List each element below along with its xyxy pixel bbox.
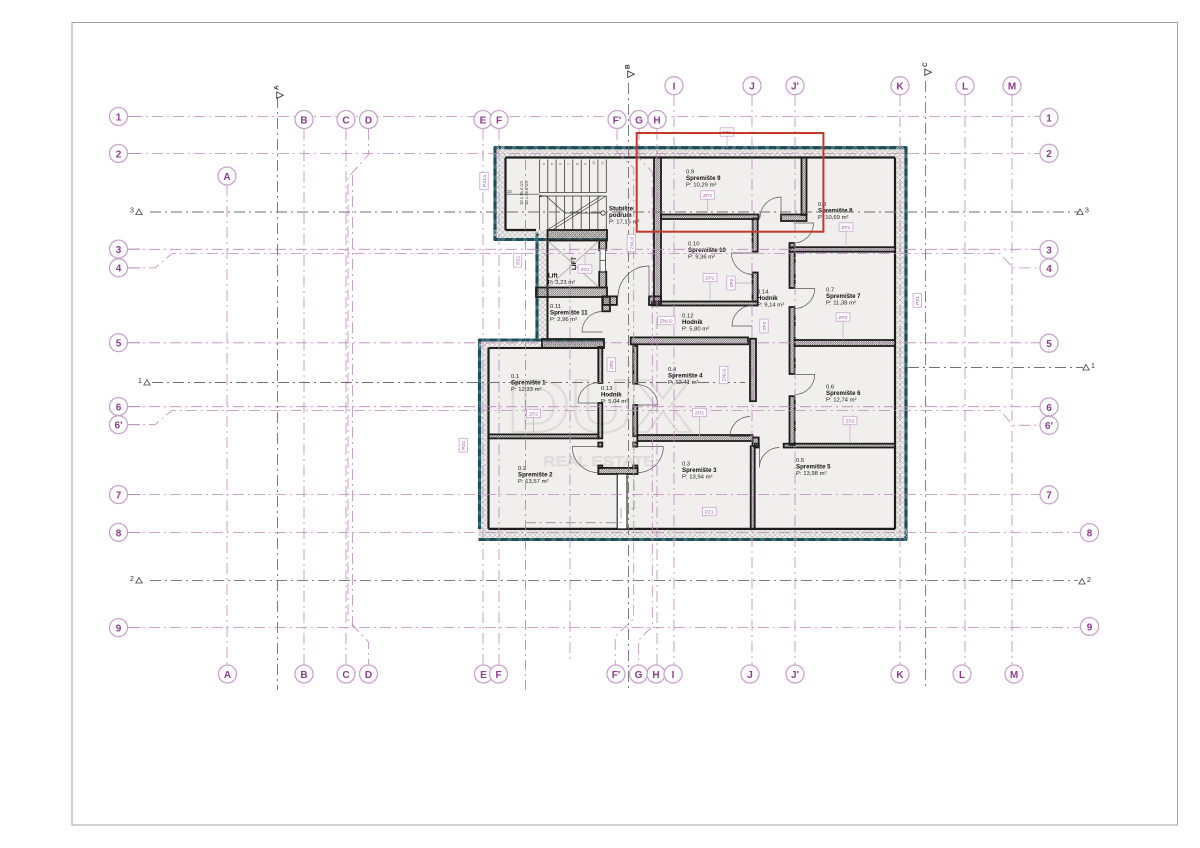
svg-text:6: 6 bbox=[116, 402, 122, 413]
svg-text:Lift: Lift bbox=[548, 273, 557, 280]
svg-text:P: 5,04 m²: P: 5,04 m² bbox=[601, 399, 628, 405]
svg-text:A: A bbox=[274, 85, 281, 90]
svg-text:4: 4 bbox=[116, 264, 122, 275]
svg-text:6': 6' bbox=[115, 421, 123, 432]
svg-text:B: B bbox=[625, 64, 632, 69]
svg-text:8: 8 bbox=[575, 163, 579, 165]
svg-text:C: C bbox=[922, 62, 929, 67]
svg-text:P: 10,29 m²: P: 10,29 m² bbox=[686, 183, 716, 189]
svg-text:G: G bbox=[635, 670, 643, 681]
svg-text:P: 2,96 m²: P: 2,96 m² bbox=[550, 317, 577, 323]
svg-text:I: I bbox=[672, 670, 675, 681]
svg-text:Spremište 6: Spremište 6 bbox=[826, 390, 861, 397]
svg-text:Spremište 11: Spremište 11 bbox=[550, 310, 588, 317]
svg-text:Spremište 1: Spremište 1 bbox=[511, 380, 546, 387]
svg-text:H: H bbox=[653, 115, 660, 126]
svg-text:LIFT: LIFT bbox=[571, 257, 578, 270]
svg-text:L: L bbox=[959, 670, 965, 681]
svg-text:P: 13,98 m²: P: 13,98 m² bbox=[796, 471, 826, 477]
svg-text:Spremište 4: Spremište 4 bbox=[668, 373, 703, 380]
svg-text:J: J bbox=[749, 82, 755, 93]
svg-text:B: B bbox=[300, 115, 307, 126]
svg-text:ZNU2: ZNU2 bbox=[722, 368, 728, 381]
svg-text:3: 3 bbox=[1085, 208, 1089, 215]
svg-text:6: 6 bbox=[1046, 403, 1052, 414]
svg-text:D: D bbox=[365, 115, 372, 126]
svg-text:ZP2: ZP2 bbox=[762, 321, 768, 330]
svg-text:ZP2: ZP2 bbox=[729, 278, 735, 287]
svg-text:ZP2: ZP2 bbox=[706, 275, 715, 281]
svg-text:P: 12,33 m²: P: 12,33 m² bbox=[511, 387, 541, 393]
svg-text:10: 10 bbox=[592, 161, 596, 165]
svg-text:4: 4 bbox=[542, 163, 546, 165]
svg-text:9: 9 bbox=[116, 624, 122, 635]
svg-text:P: 13,57 m²: P: 13,57 m² bbox=[518, 479, 548, 485]
svg-text:8: 8 bbox=[116, 528, 122, 539]
svg-text:D: D bbox=[365, 670, 372, 681]
svg-text:F': F' bbox=[613, 115, 622, 126]
svg-text:F: F bbox=[495, 670, 501, 681]
svg-text:ZP2: ZP2 bbox=[695, 410, 704, 416]
svg-text:5: 5 bbox=[550, 163, 554, 165]
svg-text:2: 2 bbox=[130, 576, 134, 583]
svg-text:Spremište 5: Spremište 5 bbox=[796, 464, 831, 471]
svg-text:ZD1: ZD1 bbox=[580, 267, 590, 273]
svg-text:M: M bbox=[1010, 670, 1018, 681]
svg-text:ZP2: ZP2 bbox=[846, 418, 855, 424]
svg-text:Hodnik: Hodnik bbox=[682, 319, 703, 326]
svg-text:ZP2: ZP2 bbox=[839, 315, 848, 321]
svg-text:5: 5 bbox=[116, 339, 122, 350]
svg-text:7: 7 bbox=[567, 163, 571, 165]
svg-text:Hodnik: Hodnik bbox=[757, 295, 778, 302]
svg-text:P: 3,23 m²: P: 3,23 m² bbox=[548, 280, 575, 286]
svg-text:10: 10 bbox=[507, 189, 512, 194]
svg-text:6: 6 bbox=[559, 163, 563, 165]
svg-text:I: I bbox=[673, 82, 676, 93]
svg-text:Spremište 7: Spremište 7 bbox=[826, 293, 861, 300]
svg-text:J': J' bbox=[791, 82, 799, 93]
svg-text:P: 17,15 m²: P: 17,15 m² bbox=[609, 220, 639, 226]
svg-text:8: 8 bbox=[1087, 529, 1093, 540]
svg-text:E: E bbox=[480, 115, 487, 126]
svg-text:6': 6' bbox=[1045, 421, 1053, 432]
svg-text:5: 5 bbox=[1046, 339, 1052, 350]
svg-text:P: 5,80 m²: P: 5,80 m² bbox=[682, 327, 709, 333]
svg-text:2: 2 bbox=[1087, 577, 1091, 584]
svg-text:PZ1: PZ1 bbox=[516, 255, 522, 264]
svg-text:4: 4 bbox=[1046, 264, 1052, 275]
svg-text:H: H bbox=[652, 670, 659, 681]
svg-text:ZP2: ZP2 bbox=[842, 225, 851, 231]
svg-text:P: 9,14 m²: P: 9,14 m² bbox=[757, 303, 784, 309]
svg-text:PZ1: PZ1 bbox=[705, 509, 714, 515]
svg-text:Hodnik: Hodnik bbox=[601, 392, 622, 399]
svg-text:1: 1 bbox=[138, 378, 142, 385]
svg-text:E: E bbox=[480, 670, 487, 681]
svg-text:1: 1 bbox=[1046, 113, 1052, 124]
svg-text:3: 3 bbox=[130, 208, 134, 215]
svg-text:G: G bbox=[635, 115, 643, 126]
svg-text:ZNU2: ZNU2 bbox=[660, 318, 673, 324]
svg-text:1: 1 bbox=[1091, 363, 1095, 370]
svg-text:16 x 29,0 cm: 16 x 29,0 cm bbox=[524, 181, 529, 205]
svg-text:P: 12,41 m²: P: 12,41 m² bbox=[668, 380, 698, 386]
svg-text:PZ1: PZ1 bbox=[915, 296, 921, 305]
svg-text:M: M bbox=[1008, 82, 1016, 93]
svg-text:ZNU2: ZNU2 bbox=[629, 236, 635, 249]
svg-text:F: F bbox=[496, 115, 502, 126]
svg-text:11: 11 bbox=[600, 161, 604, 165]
svg-text:J: J bbox=[747, 670, 753, 681]
svg-text:Spremište 9: Spremište 9 bbox=[686, 175, 721, 182]
svg-text:ZP2: ZP2 bbox=[529, 411, 538, 417]
svg-text:3: 3 bbox=[116, 245, 122, 256]
svg-text:A: A bbox=[223, 172, 230, 183]
svg-text:B: B bbox=[300, 670, 307, 681]
svg-text:J': J' bbox=[791, 670, 799, 681]
svg-text:K: K bbox=[896, 670, 904, 681]
svg-text:2: 2 bbox=[1046, 149, 1052, 160]
svg-text:P: 9,36 m²: P: 9,36 m² bbox=[688, 255, 715, 261]
svg-text:C: C bbox=[342, 670, 349, 681]
svg-text:K: K bbox=[896, 82, 904, 93]
svg-text:2: 2 bbox=[116, 149, 122, 160]
svg-text:P: 13,94 m²: P: 13,94 m² bbox=[682, 475, 712, 481]
svg-text:PZ1a: PZ1a bbox=[482, 175, 488, 187]
svg-text:ZP2: ZP2 bbox=[703, 193, 712, 199]
svg-text:PZ1: PZ1 bbox=[461, 440, 467, 449]
svg-text:Spremište 2: Spremište 2 bbox=[518, 472, 553, 479]
svg-text:F': F' bbox=[612, 670, 621, 681]
svg-text:P: 12,74 m²: P: 12,74 m² bbox=[826, 398, 856, 404]
svg-text:9: 9 bbox=[584, 163, 588, 165]
svg-text:Spremište 3: Spremište 3 bbox=[682, 467, 717, 474]
svg-text:P: 11,38 m²: P: 11,38 m² bbox=[826, 301, 856, 307]
svg-text:C: C bbox=[342, 115, 349, 126]
svg-text:L: L bbox=[962, 82, 968, 93]
svg-text:9: 9 bbox=[1087, 622, 1093, 633]
svg-text:Spremište 10: Spremište 10 bbox=[688, 247, 727, 254]
svg-text:ZP2: ZP2 bbox=[609, 360, 615, 369]
svg-text:7: 7 bbox=[1046, 491, 1052, 502]
svg-text:7: 7 bbox=[116, 490, 122, 501]
svg-text:1: 1 bbox=[116, 112, 122, 123]
svg-text:A: A bbox=[224, 670, 231, 681]
svg-text:3: 3 bbox=[1046, 245, 1052, 256]
